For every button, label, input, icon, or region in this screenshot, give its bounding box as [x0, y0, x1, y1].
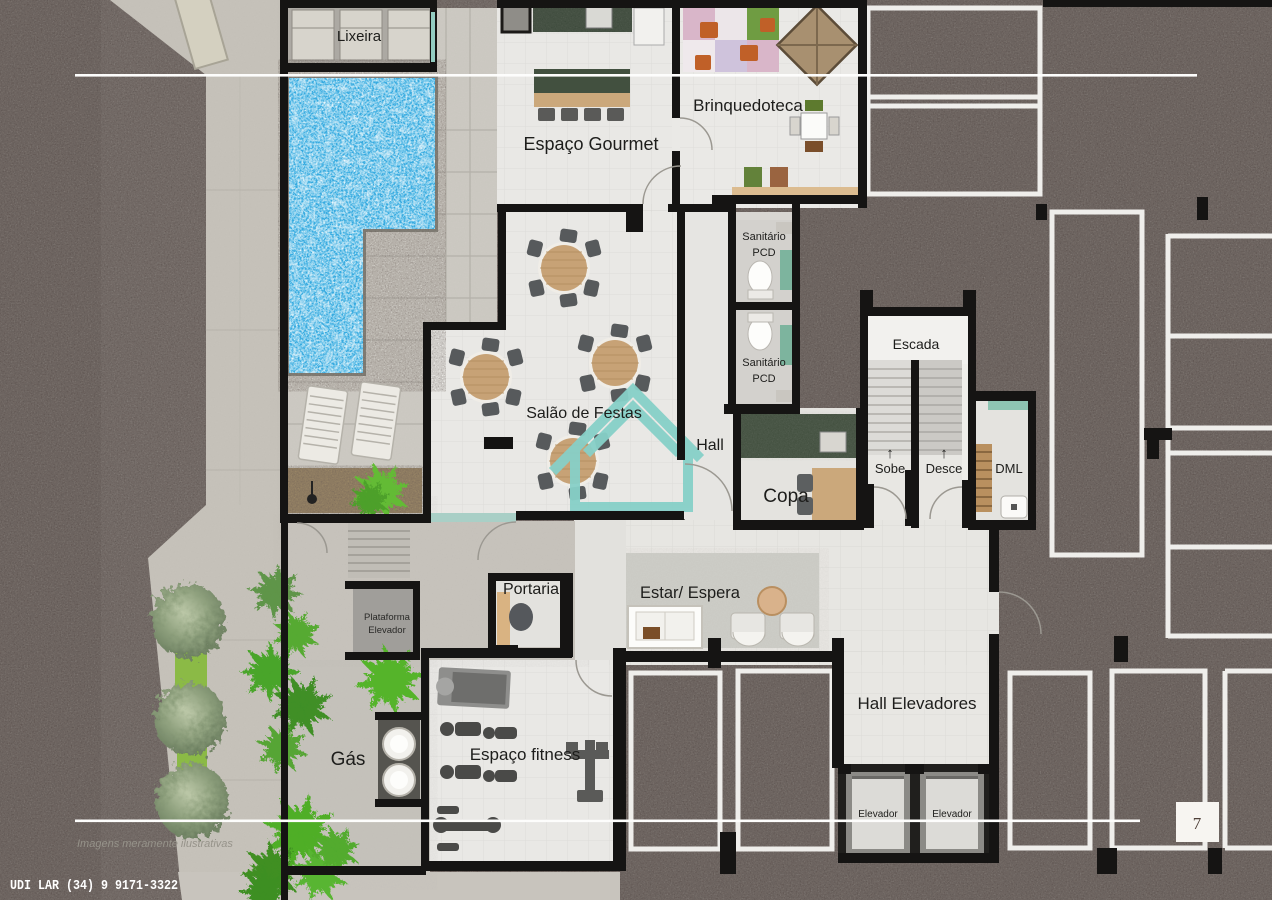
svg-text:Espaço fitness: Espaço fitness — [470, 745, 581, 764]
svg-text:Sanitário: Sanitário — [742, 231, 785, 243]
svg-text:DML: DML — [995, 461, 1022, 476]
svg-text:Sanitário: Sanitário — [742, 357, 785, 369]
svg-text:Lixeira: Lixeira — [337, 28, 382, 45]
svg-text:Sobe: Sobe — [875, 461, 905, 476]
svg-text:Estar/ Espera: Estar/ Espera — [640, 584, 741, 602]
svg-text:Elevador: Elevador — [932, 809, 972, 820]
svg-text:Salão de Festas: Salão de Festas — [526, 405, 642, 422]
svg-text:Escada: Escada — [893, 336, 940, 352]
svg-text:Desce: Desce — [926, 461, 963, 476]
svg-text:UDI LAR (34) 9 9171-3322: UDI LAR (34) 9 9171-3322 — [10, 878, 178, 894]
svg-text:Espaço Gourmet: Espaço Gourmet — [523, 134, 658, 154]
svg-text:↑: ↑ — [886, 445, 894, 462]
svg-text:Portaria: Portaria — [503, 581, 559, 598]
svg-text:Brinquedoteca: Brinquedoteca — [693, 96, 803, 115]
svg-text:Plataforma: Plataforma — [364, 612, 411, 623]
svg-text:Imagens meramente ilustrativas: Imagens meramente ilustrativas — [77, 838, 233, 850]
svg-text:Hall Elevadores: Hall Elevadores — [857, 694, 976, 713]
svg-text:Copa: Copa — [763, 486, 809, 507]
svg-text:Elevador: Elevador — [368, 625, 406, 636]
svg-text:Hall: Hall — [696, 437, 724, 454]
svg-text:PCD: PCD — [752, 373, 775, 385]
svg-text:PCD: PCD — [752, 247, 775, 259]
svg-text:Elevador: Elevador — [858, 809, 898, 820]
svg-text:7: 7 — [1193, 814, 1202, 833]
svg-text:Gás: Gás — [331, 749, 366, 770]
svg-text:↑: ↑ — [940, 445, 948, 462]
